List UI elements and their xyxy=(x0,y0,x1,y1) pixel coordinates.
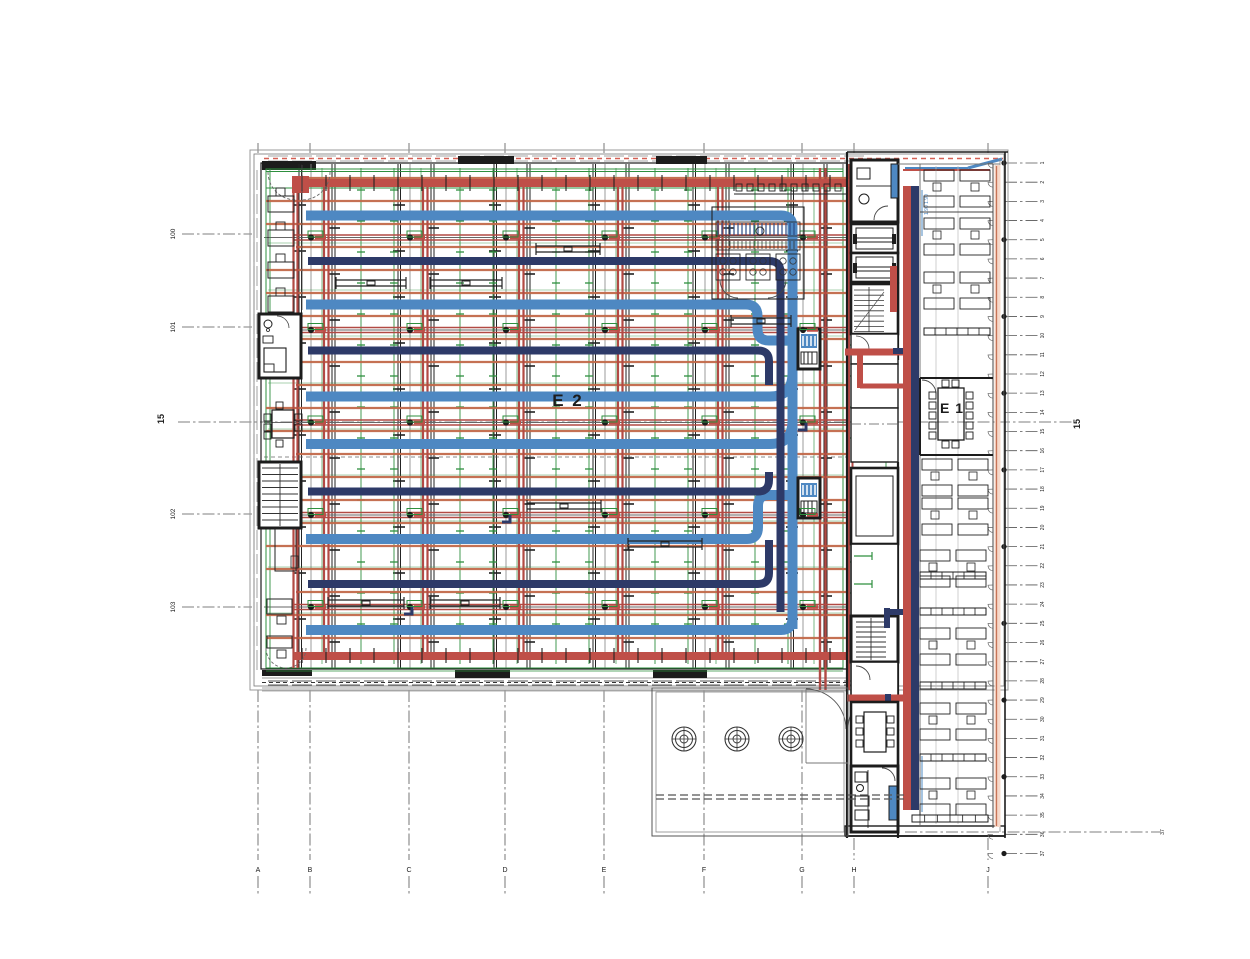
svg-text:12: 12 xyxy=(1040,371,1046,377)
svg-text:D: D xyxy=(502,867,507,874)
svg-text:E 1: E 1 xyxy=(940,400,964,416)
svg-text:103: 103 xyxy=(170,601,177,612)
svg-text:4: 4 xyxy=(1040,219,1046,222)
svg-text:35: 35 xyxy=(1040,812,1046,818)
svg-text:33: 33 xyxy=(1040,774,1046,780)
svg-text:1: 1 xyxy=(1040,161,1046,164)
svg-text:2: 2 xyxy=(1040,181,1046,184)
svg-text:28: 28 xyxy=(1040,678,1046,684)
svg-text:18: 18 xyxy=(1040,486,1046,492)
svg-text:32: 32 xyxy=(1040,755,1046,761)
svg-text:101: 101 xyxy=(170,321,177,332)
svg-text:102: 102 xyxy=(170,508,177,519)
svg-text:30: 30 xyxy=(1040,716,1046,722)
svg-text:10: 10 xyxy=(1040,333,1046,339)
svg-text:13: 13 xyxy=(1040,390,1046,396)
svg-text:21: 21 xyxy=(1040,544,1046,550)
svg-text:E 2: E 2 xyxy=(552,391,584,410)
svg-text:19: 19 xyxy=(1040,505,1046,511)
svg-text:15: 15 xyxy=(1040,429,1046,435)
svg-text:15: 15 xyxy=(156,414,166,424)
svg-text:6: 6 xyxy=(1040,257,1046,260)
svg-text:34: 34 xyxy=(1040,793,1046,799)
svg-text:37: 37 xyxy=(1160,829,1166,835)
svg-text:29: 29 xyxy=(1040,697,1046,703)
svg-text:8: 8 xyxy=(1040,296,1046,299)
svg-text:25: 25 xyxy=(1040,620,1046,626)
svg-text:G: G xyxy=(799,867,804,874)
svg-text:15: 15 xyxy=(1072,419,1082,429)
svg-text:17: 17 xyxy=(1040,467,1046,473)
svg-text:14: 14 xyxy=(1040,409,1046,415)
svg-text:7: 7 xyxy=(1040,276,1046,279)
svg-text:100: 100 xyxy=(170,228,177,239)
svg-text:22: 22 xyxy=(1040,563,1046,569)
svg-text:B: B xyxy=(308,867,313,874)
svg-text:3: 3 xyxy=(1040,200,1046,203)
svg-text:A: A xyxy=(256,867,261,874)
svg-text:9: 9 xyxy=(1040,315,1046,318)
svg-text:31: 31 xyxy=(1040,735,1046,741)
svg-text:20: 20 xyxy=(1040,524,1046,530)
svg-text:H: H xyxy=(851,867,856,874)
svg-text:16: 16 xyxy=(1040,448,1046,454)
svg-text:24: 24 xyxy=(1040,601,1046,607)
svg-text:27: 27 xyxy=(1040,659,1046,665)
svg-text:J: J xyxy=(986,867,990,874)
svg-text:C: C xyxy=(406,867,411,874)
svg-text:37: 37 xyxy=(1040,850,1046,856)
svg-text:26: 26 xyxy=(1040,640,1046,646)
svg-text:11: 11 xyxy=(1040,352,1046,357)
svg-text:F: F xyxy=(702,867,706,874)
svg-text:E: E xyxy=(602,867,607,874)
svg-text:23: 23 xyxy=(1040,582,1046,588)
svg-text:5: 5 xyxy=(1040,238,1046,241)
